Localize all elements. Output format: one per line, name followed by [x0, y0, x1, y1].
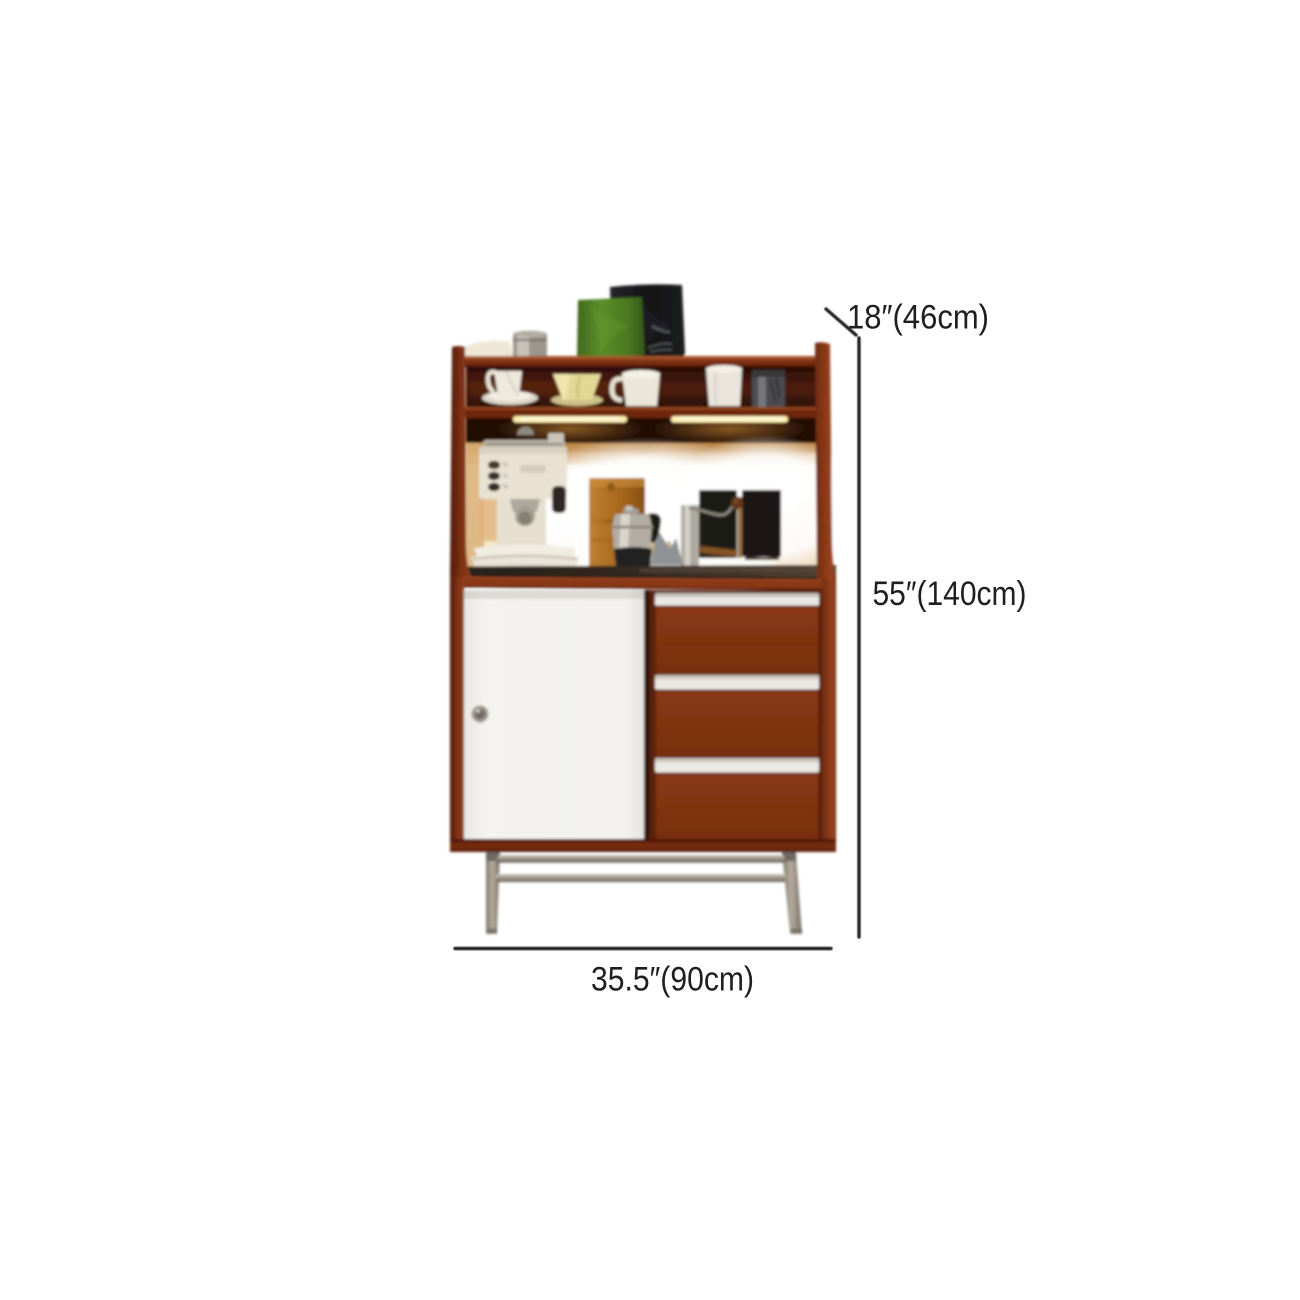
svg-text:18″(46cm): 18″(46cm)	[847, 299, 989, 337]
svg-text:55″(140cm): 55″(140cm)	[873, 575, 1027, 613]
svg-text:35.5″(90cm): 35.5″(90cm)	[591, 961, 754, 999]
